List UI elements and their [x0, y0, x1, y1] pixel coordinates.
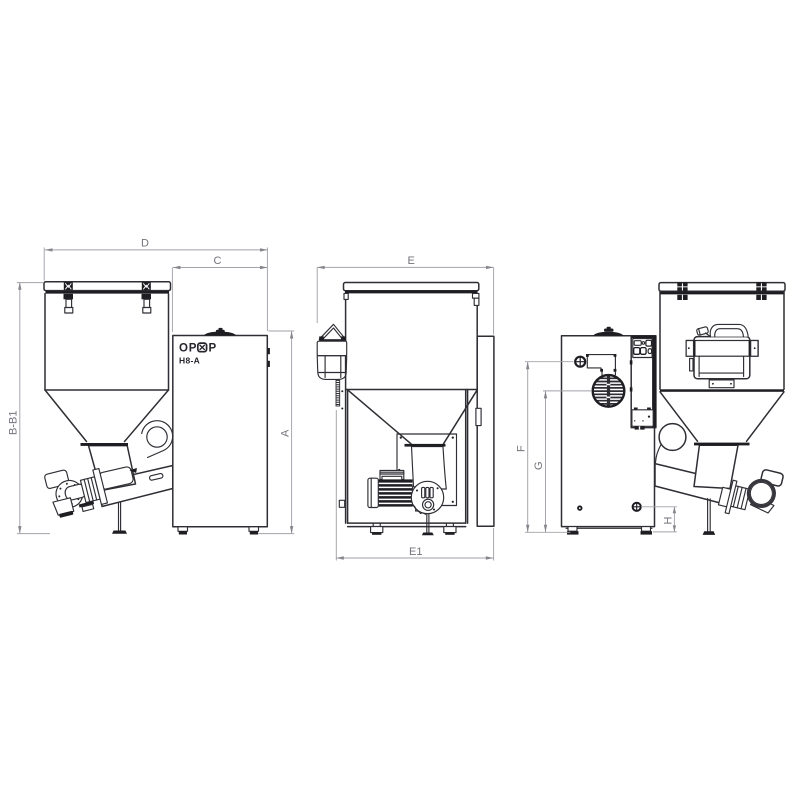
svg-text:G: G — [533, 461, 545, 470]
svg-text:F: F — [516, 445, 528, 452]
svg-text:E1: E1 — [409, 546, 422, 558]
svg-text:H: H — [663, 517, 675, 525]
svg-text:H8-A: H8-A — [179, 356, 200, 366]
svg-text:OP: OP — [179, 343, 197, 355]
svg-text:P: P — [209, 343, 217, 355]
svg-text:E: E — [408, 255, 415, 267]
svg-text:B-B1: B-B1 — [8, 411, 20, 435]
svg-text:C: C — [214, 255, 222, 267]
svg-text:A: A — [280, 429, 292, 437]
svg-text:D: D — [141, 238, 149, 250]
